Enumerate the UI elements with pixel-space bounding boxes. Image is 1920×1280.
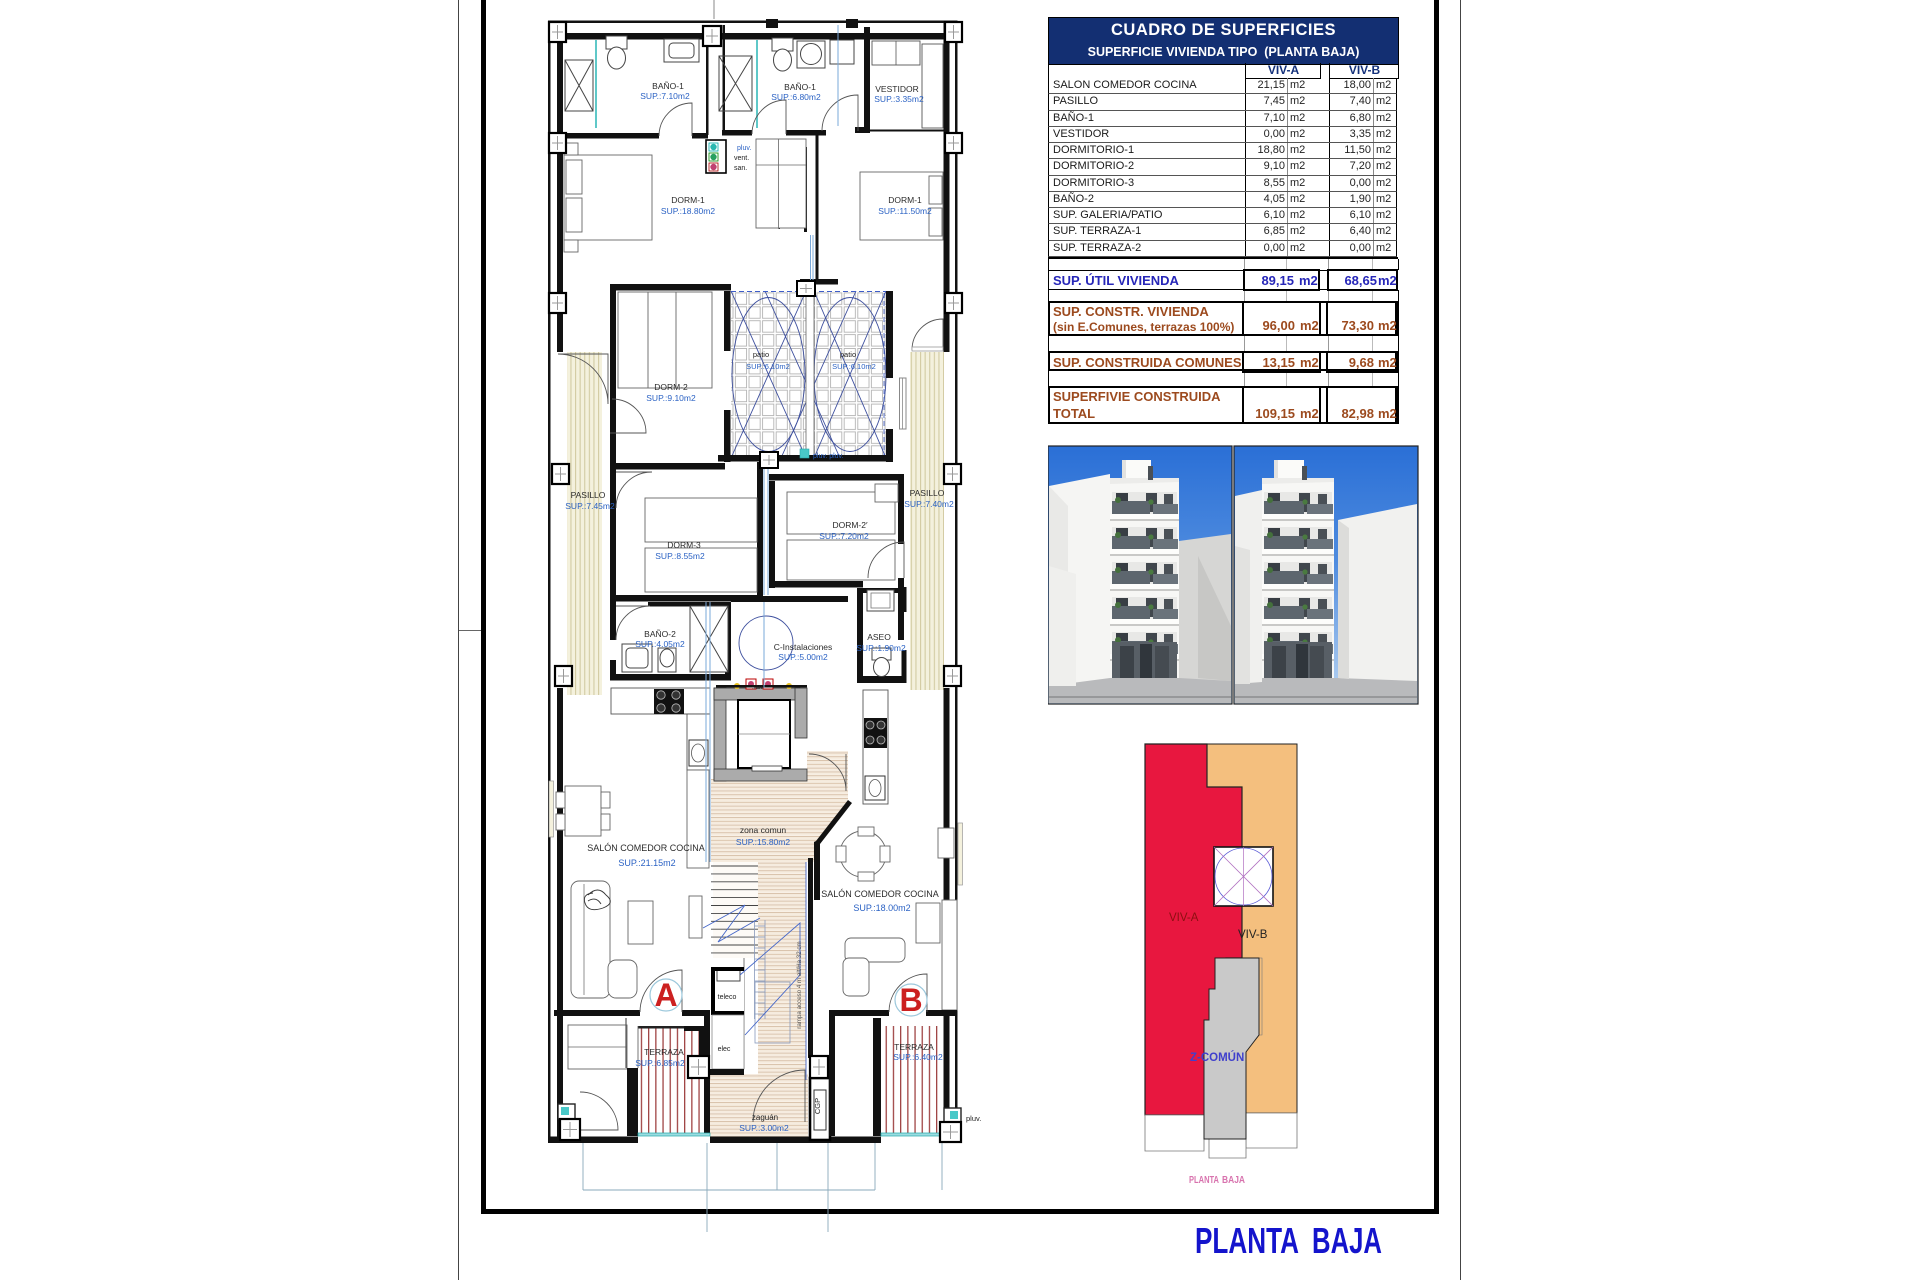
svg-text:SUP.:7.45m2: SUP.:7.45m2 [565,501,615,511]
svg-text:SUP.:7.10m2: SUP.:7.10m2 [640,91,690,101]
svg-text:PLANTA: PLANTA [1195,1220,1299,1261]
svg-text:PLANTA: PLANTA [1189,1174,1219,1186]
svg-text:A: A [654,977,677,1013]
svg-text:SUP.:6.10m2: SUP.:6.10m2 [746,362,790,371]
svg-text:SUP.:18.80m2: SUP.:18.80m2 [661,206,715,216]
svg-text:TERRAZA: TERRAZA [644,1047,684,1057]
svg-text:BAÑO-1: BAÑO-1 [784,82,816,92]
svg-text:SUP.:9.10m2: SUP.:9.10m2 [646,393,696,403]
svg-text:SUP.:6.40m2: SUP.:6.40m2 [893,1052,943,1062]
svg-text:B: B [899,982,922,1018]
svg-text:DORM-3: DORM-3 [667,540,701,550]
svg-text:DORM-2: DORM-2 [654,382,688,392]
svg-text:pluv.: pluv. [737,145,751,152]
svg-text:rampa acceso 4 m alt/Ha 32 cm: rampa acceso 4 m alt/Ha 32 cm [796,941,803,1028]
svg-text:SUP.:18.00m2: SUP.:18.00m2 [853,903,910,913]
svg-text:VIV-B: VIV-B [1238,929,1268,941]
svg-text:DORM-1: DORM-1 [888,195,922,205]
svg-text:BAÑO-1: BAÑO-1 [652,81,684,91]
svg-text:VESTIDOR: VESTIDOR [875,84,918,94]
svg-text:SALÓN COMEDOR COCINA: SALÓN COMEDOR COCINA [821,889,939,899]
svg-text:TERRAZA: TERRAZA [894,1042,934,1052]
svg-text:PASILLO: PASILLO [571,490,606,500]
svg-text:san.: san. [752,685,764,691]
svg-text:vent.: vent. [734,155,749,162]
svg-text:pluv.: pluv. [966,1114,981,1123]
svg-text:SUP.:1.90m2: SUP.:1.90m2 [856,643,906,653]
svg-text:SUP.:3.35m2: SUP.:3.35m2 [874,94,924,104]
svg-text:SALÓN COMEDOR COCINA: SALÓN COMEDOR COCINA [587,843,705,853]
svg-text:VIV-A: VIV-A [1169,912,1199,924]
svg-text:SUP.:11.50m2: SUP.:11.50m2 [878,206,932,216]
svg-text:SUP.:6.80m2: SUP.:6.80m2 [771,92,821,102]
svg-text:pluv. pluv.: pluv. pluv. [813,453,844,460]
svg-text:DORM-2′: DORM-2′ [832,520,868,530]
svg-text:C-Instalaciones: C-Instalaciones [774,642,833,652]
svg-text:SUP.:15.80m2: SUP.:15.80m2 [736,837,790,847]
svg-text:san.: san. [734,165,747,172]
svg-text:BAJA: BAJA [1222,1174,1245,1186]
svg-text:zona comun: zona comun [740,825,787,835]
svg-text:SUP.:3.00m2: SUP.:3.00m2 [739,1123,789,1133]
svg-text:elec: elec [718,1046,731,1053]
svg-text:BAJA: BAJA [1312,1220,1382,1261]
svg-text:BAÑO-2: BAÑO-2 [644,629,676,639]
svg-text:teleco: teleco [718,994,737,1001]
svg-text:SUP.:7.20m2: SUP.:7.20m2 [819,531,869,541]
svg-text:DORM-1: DORM-1 [671,195,705,205]
svg-text:SUP.:21.15m2: SUP.:21.15m2 [618,858,675,868]
svg-text:CGP: CGP [813,1098,822,1114]
svg-text:zaguán: zaguán [752,1113,778,1122]
svg-text:SUP.:5.00m2: SUP.:5.00m2 [778,652,828,662]
svg-text:SUP.:6.85m2: SUP.:6.85m2 [635,1058,685,1068]
svg-text:ASEO: ASEO [867,632,891,642]
svg-text:SUP.:7.40m2: SUP.:7.40m2 [904,499,954,509]
svg-text:SUP.:8.55m2: SUP.:8.55m2 [655,551,705,561]
svg-text:SUP.:4.05m2: SUP.:4.05m2 [635,639,685,649]
svg-text:patio: patio [840,350,856,359]
svg-text:SUP.:6.10m2: SUP.:6.10m2 [832,362,876,371]
svg-text:patio: patio [753,350,769,359]
svg-text:PASILLO: PASILLO [910,488,945,498]
svg-text:Z-COMÚN: Z-COMÚN [1190,1051,1244,1064]
